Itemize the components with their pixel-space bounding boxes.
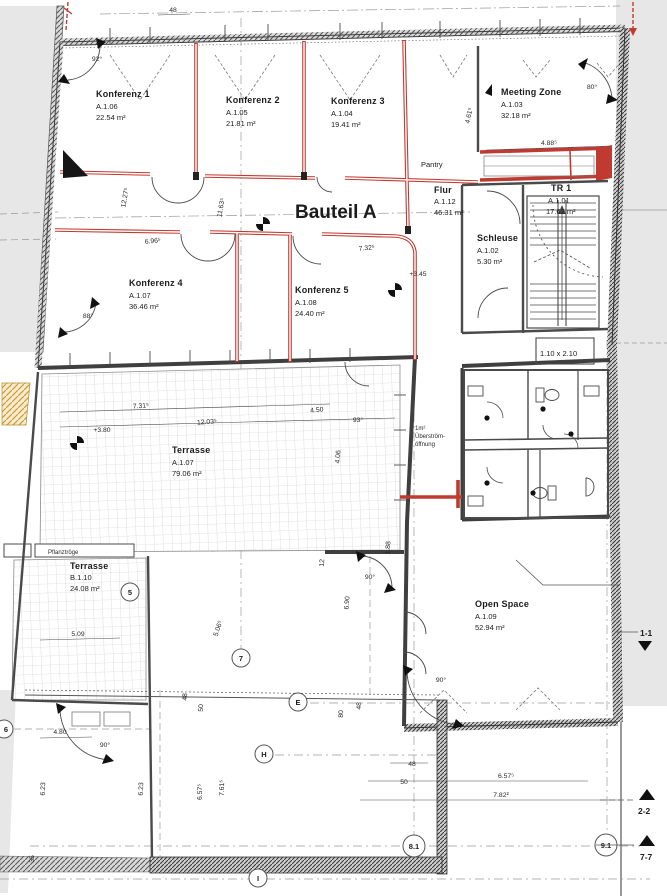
room-flur-area: 46.31 m²: [434, 208, 464, 217]
room-konferenz-3-area: 19.41 m²: [331, 120, 361, 129]
dim-28: 50: [198, 704, 205, 712]
section-7-7: 7-7: [640, 852, 653, 862]
toilet-icon: [536, 388, 559, 402]
dim-26: 7.61⁵: [219, 780, 227, 796]
dim-15: 93°: [353, 416, 364, 424]
dim-6: 11.63⁵: [216, 197, 226, 217]
grid-bubble-7: 7: [239, 654, 243, 663]
dim-34: 90°: [436, 676, 447, 684]
dim-35: 35: [29, 855, 36, 863]
dim-36: 6.23: [138, 782, 145, 796]
planter-orange-hatch: [2, 383, 30, 425]
room-flur-code: A.1.12: [434, 197, 456, 206]
dim-27: 48: [182, 693, 189, 701]
sink-icon: [468, 386, 483, 396]
pantry-label: Pantry: [421, 160, 443, 169]
room-konferenz-1-name: Konferenz 1: [96, 89, 150, 99]
room-terrasse-b-area: 24.08 m²: [70, 584, 100, 593]
dim-7: 6.96⁵: [144, 237, 161, 246]
room-open-space-code: A.1.09: [475, 612, 497, 621]
dim-2: 80°: [587, 83, 598, 91]
dim-13: +3.80: [93, 427, 110, 434]
dim-29: 80: [338, 710, 345, 718]
room-tr1-name: TR 1: [551, 183, 571, 193]
dim-12: 12.03⁵: [197, 418, 217, 426]
grid-bubble-6: 6: [4, 725, 8, 734]
room-konferenz-5-area: 24.40 m²: [295, 309, 325, 318]
dim-31: 50: [400, 779, 408, 786]
dim-17: 1.88: [385, 541, 393, 555]
room-terrasse-b-code: B.1.10: [70, 573, 92, 582]
overflow-label-2: Überström-: [415, 433, 445, 440]
room-konferenz-2-name: Konferenz 2: [226, 95, 280, 105]
room-schleuse-name: Schleuse: [477, 233, 518, 243]
planters-label: Pflanztröge: [48, 550, 79, 556]
building-title: Bauteil A: [295, 202, 377, 223]
room-schleuse-area: 5.30 m²: [477, 257, 503, 266]
room-konferenz-3-code: A.1.04: [331, 109, 353, 118]
room-konferenz-4-area: 36.46 m²: [129, 302, 159, 311]
dim-9: +3.45: [409, 271, 426, 278]
room-open-space-area: 52.94 m²: [475, 623, 505, 632]
section-2-2: 2-2: [638, 806, 651, 816]
grid-bubble-5: 5: [128, 588, 132, 597]
dim-8: 7.32⁵: [358, 244, 375, 253]
dim-22: 6.23: [40, 782, 47, 796]
planter-box: [4, 544, 31, 557]
room-konferenz-2-code: A.1.05: [226, 108, 248, 117]
dim-19: 90°: [365, 573, 376, 581]
dim-10: 88°: [83, 312, 94, 320]
dim-4: 4.61⁵: [464, 107, 474, 124]
urinal-icon: [586, 478, 594, 496]
staircase: [527, 196, 603, 364]
room-konferenz-4-name: Konferenz 4: [129, 278, 183, 288]
room-konferenz-1-code: A.1.06: [96, 102, 118, 111]
dim-21: 5.06⁵: [213, 620, 225, 638]
room-terrasse-a-code: A.1.07: [172, 458, 194, 467]
dim-23: 4.80: [53, 729, 66, 736]
dim-24: 90°: [100, 741, 111, 749]
dim-37: 12: [319, 559, 327, 567]
room-terrasse-b-name: Terrasse: [70, 561, 108, 571]
grid-bubble-9-1: 9.1: [601, 841, 611, 850]
door-size-label: 1.10 x 2.10: [540, 349, 577, 358]
overflow-label-1: 1m²: [415, 426, 425, 432]
dim-11: 7.31⁵: [133, 402, 150, 410]
terrace-upper: [40, 365, 400, 552]
dim-18: 6.90: [344, 596, 352, 610]
room-flur-name: Flur: [434, 185, 452, 195]
overflow-label-3: öffnung: [415, 442, 435, 448]
room-tr1-code: A.1.01: [548, 196, 570, 205]
room-schleuse-code: A.1.02: [477, 246, 499, 255]
room-meeting-zone-area: 32.18 m²: [501, 111, 531, 120]
dim-3: 4.88⁵: [541, 140, 557, 147]
grid-bubble-i: I: [257, 874, 259, 883]
pantry-red-block: [596, 145, 612, 181]
room-konferenz-1-area: 22.54 m²: [96, 113, 126, 122]
dim-5: 12.27⁵: [120, 187, 130, 208]
dim-16: 4.06: [335, 450, 343, 464]
grid-bubble-h: H: [261, 750, 266, 759]
wall-corner-fill: [63, 150, 88, 178]
dim-38: 48: [356, 702, 363, 710]
dim-30: 48: [408, 761, 416, 768]
floor-plan-page: Konferenz 1 A.1.06 22.54 m² Konferenz 2 …: [0, 0, 667, 896]
dim-14: 4.50: [310, 406, 324, 414]
sink-icon: [584, 386, 599, 396]
room-konferenz-3-name: Konferenz 3: [331, 96, 385, 106]
section-1-1: 1-1: [640, 628, 653, 638]
room-konferenz-5-name: Konferenz 5: [295, 285, 349, 295]
room-konferenz-4-code: A.1.07: [129, 291, 151, 300]
dim-32: 6.57⁵: [498, 773, 514, 780]
room-meeting-zone-name: Meeting Zone: [501, 87, 561, 97]
dim-1: 92°: [92, 55, 103, 63]
terrace-surfaces: [4, 365, 400, 700]
room-konferenz-2-area: 21.81 m²: [226, 119, 256, 128]
room-terrasse-a-area: 79.06 m²: [172, 469, 202, 478]
dim-20: 5.09: [71, 631, 84, 638]
room-terrasse-a-name: Terrasse: [172, 445, 210, 455]
grid-bubble-e: E: [295, 698, 300, 707]
room-konferenz-5-code: A.1.08: [295, 298, 317, 307]
room-meeting-zone-code: A.1.03: [501, 100, 523, 109]
grid-bubble-8-1: 8.1: [409, 842, 419, 851]
room-open-space-name: Open Space: [475, 599, 529, 609]
toilet-icon: [533, 486, 556, 500]
sink-icon: [468, 496, 483, 506]
floor-plan-canvas: Konferenz 1 A.1.06 22.54 m² Konferenz 2 …: [0, 0, 667, 896]
dim-25: 6.57⁵: [197, 784, 205, 800]
dim-33: 7.82²: [493, 792, 509, 799]
room-tr1-area: 17.62 m²: [546, 207, 576, 216]
dim-0: 48: [169, 7, 177, 14]
